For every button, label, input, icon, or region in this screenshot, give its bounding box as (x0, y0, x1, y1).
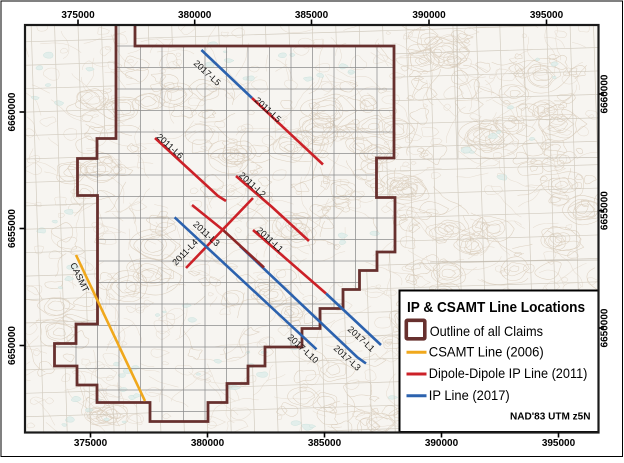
svg-text:Dipole-Dipole IP Line (2011): Dipole-Dipole IP Line (2011) (429, 366, 588, 381)
svg-text:6655000: 6655000 (600, 191, 611, 230)
svg-text:380000: 380000 (191, 438, 225, 449)
svg-text:CSAMT Line (2006): CSAMT Line (2006) (429, 344, 544, 359)
svg-text:390000: 390000 (425, 438, 459, 449)
svg-text:6650000: 6650000 (7, 326, 18, 365)
svg-text:380000: 380000 (178, 10, 212, 21)
svg-text:6660000: 6660000 (7, 92, 18, 131)
svg-text:390000: 390000 (412, 10, 446, 21)
svg-text:6655000: 6655000 (7, 209, 18, 248)
svg-text:IP Line (2017): IP Line (2017) (429, 388, 510, 403)
svg-text:IP & CSAMT Line Locations: IP & CSAMT Line Locations (407, 299, 585, 316)
svg-text:375000: 375000 (74, 438, 108, 449)
svg-text:395000: 395000 (542, 438, 576, 449)
svg-text:Outline of all Claims: Outline of all Claims (430, 324, 543, 339)
svg-text:NAD'83 UTM z5N: NAD'83 UTM z5N (510, 411, 591, 423)
svg-text:385000: 385000 (308, 438, 342, 449)
svg-text:385000: 385000 (295, 10, 329, 21)
svg-text:395000: 395000 (530, 10, 564, 21)
svg-text:375000: 375000 (61, 10, 95, 21)
svg-text:6660000: 6660000 (600, 74, 611, 113)
svg-text:6650000: 6650000 (600, 308, 611, 347)
